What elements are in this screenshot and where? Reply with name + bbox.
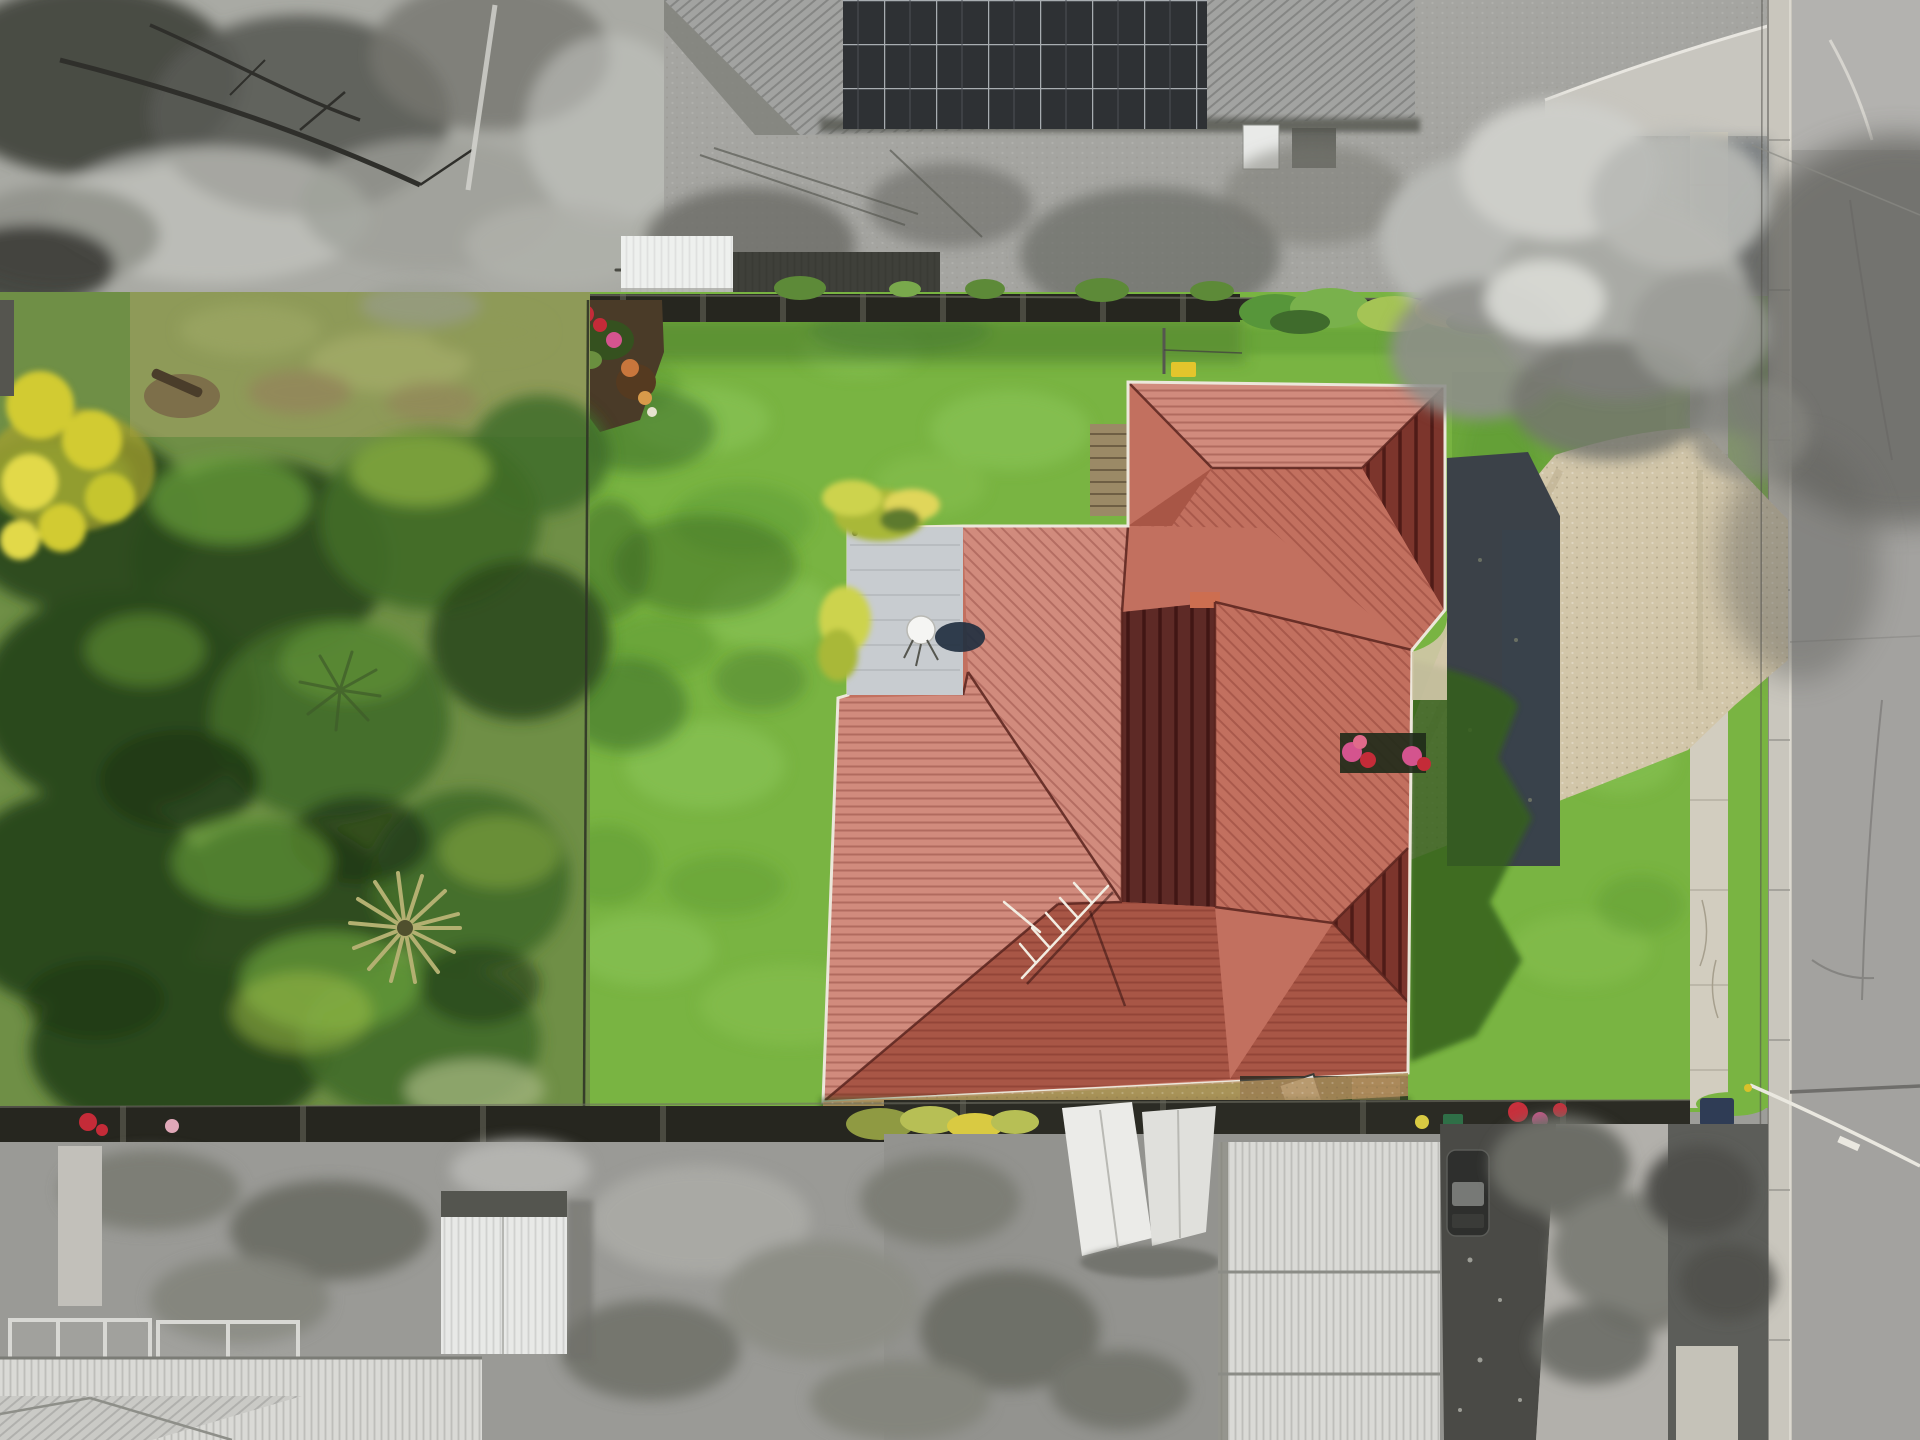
yellow-marker (1744, 1084, 1752, 1092)
bw-bottom-neighbours (0, 1102, 1776, 1440)
solar-grid (843, 0, 1207, 129)
yellow-clothesline-winder (1171, 362, 1196, 377)
dish-shadow (935, 622, 985, 652)
bw-crossover-pad (1676, 1346, 1738, 1440)
bw-carport-roofs (0, 1358, 482, 1440)
bw-neighbour-driveway (1440, 1115, 1776, 1440)
satellite-dish (907, 616, 935, 644)
aerial-photo (0, 0, 1920, 1440)
wild-garden (0, 283, 610, 1140)
bw-garden-shed (441, 1191, 593, 1360)
fence-flowers (79, 1113, 97, 1131)
bw-top-left-trees (0, 0, 695, 305)
blue-bin (1700, 1098, 1734, 1126)
bw-neighbour-roof (1218, 1142, 1440, 1440)
bw-path (58, 1146, 102, 1306)
bw-driveway-sliver (0, 300, 14, 396)
